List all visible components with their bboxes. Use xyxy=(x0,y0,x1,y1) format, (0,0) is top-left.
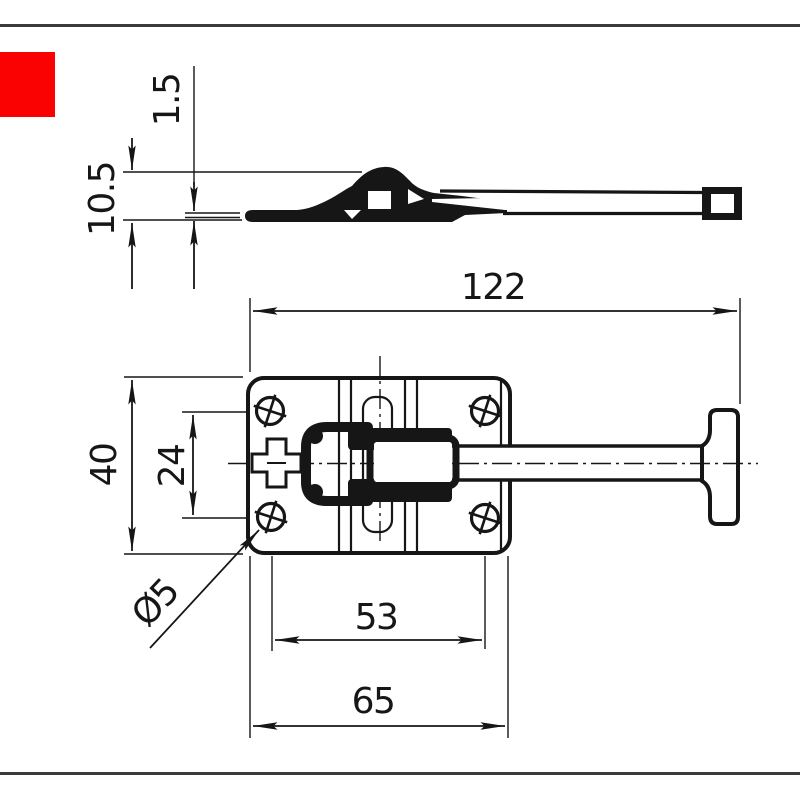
dim-label-hole-spacing-vertical: 24 xyxy=(152,445,193,488)
t-handle xyxy=(702,410,738,524)
side-view-clip-window xyxy=(368,191,391,209)
technical-drawing-canvas: 1.5 10.5 xyxy=(0,0,800,800)
technical-drawing-page: 1.5 10.5 xyxy=(0,0,800,800)
clip-pin xyxy=(307,484,323,500)
clip-pin xyxy=(307,428,323,444)
arm-loop-interior xyxy=(374,442,452,482)
dim-label-plate-height: 40 xyxy=(84,444,125,487)
dim-label-hole-diameter: Ø5 xyxy=(124,572,187,635)
dim-label-profile-height: 10.5 xyxy=(82,162,123,236)
side-view-dimensions: 1.5 10.5 xyxy=(82,66,362,289)
side-view-t-handle-bore xyxy=(711,194,734,213)
side-view-arm-top-line xyxy=(440,191,702,193)
dim-label-hole-spacing-horizontal: 53 xyxy=(355,597,398,638)
dim-label-plate-width: 65 xyxy=(352,681,395,722)
plan-view xyxy=(228,356,758,553)
dim-label-overall-length: 122 xyxy=(461,267,525,308)
side-profile-view xyxy=(245,167,742,222)
dim-label-material-thickness: 1.5 xyxy=(147,74,188,127)
red-corner-square xyxy=(0,52,55,117)
